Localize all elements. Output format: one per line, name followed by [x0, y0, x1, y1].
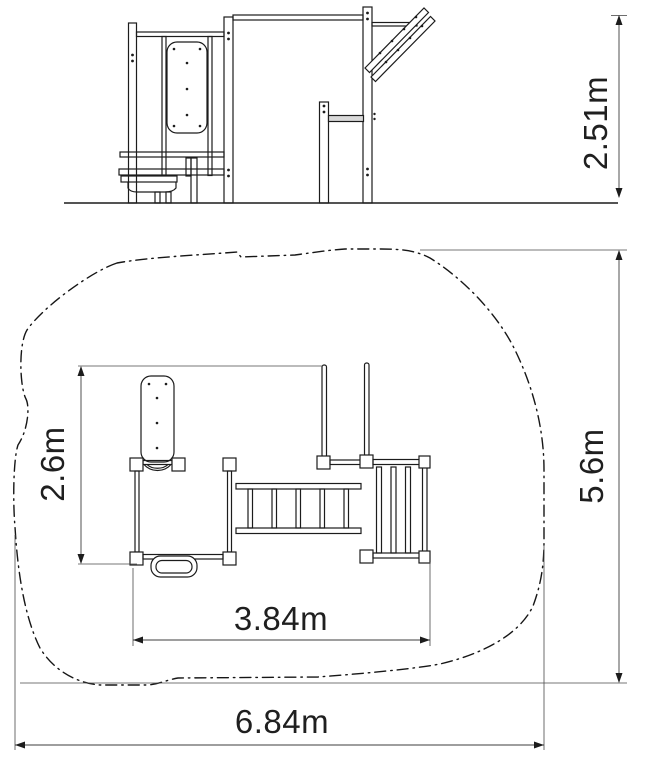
frame-rail-right: [228, 471, 232, 552]
dimension-overall-height: 2.51m: [577, 15, 627, 198]
plan-overhead-beams: [317, 363, 369, 469]
bench-seat: [121, 176, 177, 182]
post-square: [360, 455, 373, 468]
backrest-panel-elevation: [162, 37, 212, 176]
vertical-bar: [406, 467, 411, 553]
equipment-width-label: 3.84m: [234, 600, 328, 637]
safety-zone-width-label: 6.84m: [235, 703, 329, 740]
overall-height-label: 2.51m: [577, 76, 614, 170]
bench-support-upper: [186, 158, 191, 176]
unit-rail-bottom: [373, 553, 420, 558]
equipment-depth-label: 2.6m: [34, 426, 71, 501]
ladder-rail-top: [236, 484, 361, 490]
overhead-beam: [365, 363, 370, 456]
ladder-rung: [296, 489, 301, 528]
bench-leg-left: [155, 192, 160, 203]
bench-leg-right: [166, 192, 171, 203]
incline-ladder: [365, 8, 435, 82]
bench-support-post: [191, 158, 197, 203]
ladder-rung: [344, 489, 349, 528]
plan-vertical-bars-unit: [360, 455, 430, 563]
dimension-safety-zone-width: 6.84m: [15, 535, 544, 750]
backrest-panel: [167, 42, 207, 133]
post-square: [360, 550, 373, 563]
post-square: [130, 552, 143, 565]
post-square: [223, 458, 236, 471]
rail-end-cap: [419, 551, 430, 563]
plan-monkey-bar-ladder: [236, 484, 361, 534]
elevation-post-short: [320, 102, 329, 203]
beam-crossbar: [330, 460, 361, 465]
ladder-rung: [248, 489, 253, 528]
ladder-rung: [320, 489, 325, 528]
dimension-drawing-canvas: 2.51m: [0, 0, 646, 768]
unit-rail-top: [373, 460, 420, 465]
left-frame-top-bar: [137, 32, 225, 37]
top-beam: [233, 15, 363, 20]
drawing-page: 2.51m: [0, 0, 646, 768]
plan-view: 2.6m 3.84m 5.6m 6.84m: [14, 249, 627, 750]
panel-rail-right: [208, 37, 212, 176]
post-square: [223, 552, 236, 565]
ladder-rail-bottom: [236, 528, 361, 534]
vertical-bar: [377, 467, 382, 553]
step-loop-outer: [151, 556, 197, 577]
plan-left-frame: [130, 458, 236, 577]
frame-rail-left: [135, 471, 139, 552]
elevation-view: 2.51m: [64, 7, 627, 203]
safety-zone-depth-label: 5.6m: [573, 428, 610, 503]
post-square: [172, 458, 185, 471]
ladder-rail-upper: [365, 8, 429, 73]
vertical-bar: [391, 467, 396, 553]
ladder-rung: [272, 489, 277, 528]
post-square: [317, 456, 330, 469]
panel-rail-left: [162, 37, 166, 176]
bench-bracket: [128, 182, 176, 192]
unit-rail-right: [423, 467, 428, 553]
rail-end-cap: [419, 456, 430, 468]
pull-up-bar: [329, 116, 364, 122]
post-square: [130, 458, 143, 471]
overhead-beam: [322, 365, 327, 457]
plan-seat-unit: [141, 376, 174, 471]
